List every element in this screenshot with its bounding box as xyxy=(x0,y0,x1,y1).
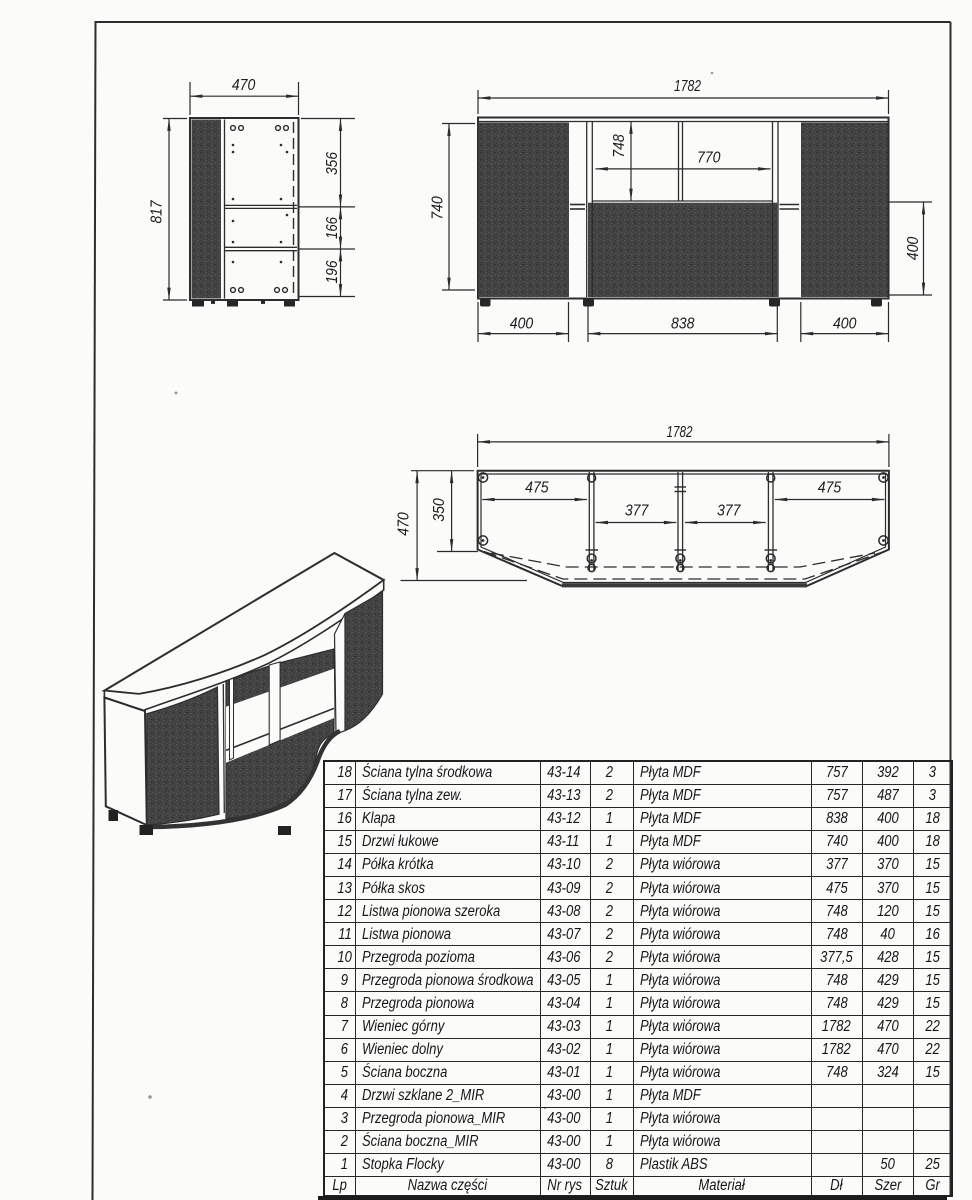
svg-text:740: 740 xyxy=(430,196,447,220)
svg-text:470: 470 xyxy=(396,512,413,536)
svg-text:196: 196 xyxy=(324,260,341,283)
svg-text:475: 475 xyxy=(818,479,842,496)
svg-text:817: 817 xyxy=(149,200,166,224)
svg-text:838: 838 xyxy=(671,315,695,332)
svg-text:377: 377 xyxy=(717,502,741,519)
svg-text:400: 400 xyxy=(833,315,857,332)
svg-text:356: 356 xyxy=(324,152,341,175)
svg-text:748: 748 xyxy=(611,134,628,158)
svg-text:1782: 1782 xyxy=(667,424,693,441)
svg-text:400: 400 xyxy=(510,315,534,332)
svg-text:1782: 1782 xyxy=(674,78,701,95)
svg-text:470: 470 xyxy=(232,77,256,94)
svg-text:350: 350 xyxy=(431,498,448,522)
svg-text:770: 770 xyxy=(697,150,721,167)
svg-text:166: 166 xyxy=(324,217,341,239)
svg-text:377: 377 xyxy=(625,502,649,519)
svg-text:400: 400 xyxy=(905,237,922,261)
svg-text:475: 475 xyxy=(525,479,549,496)
